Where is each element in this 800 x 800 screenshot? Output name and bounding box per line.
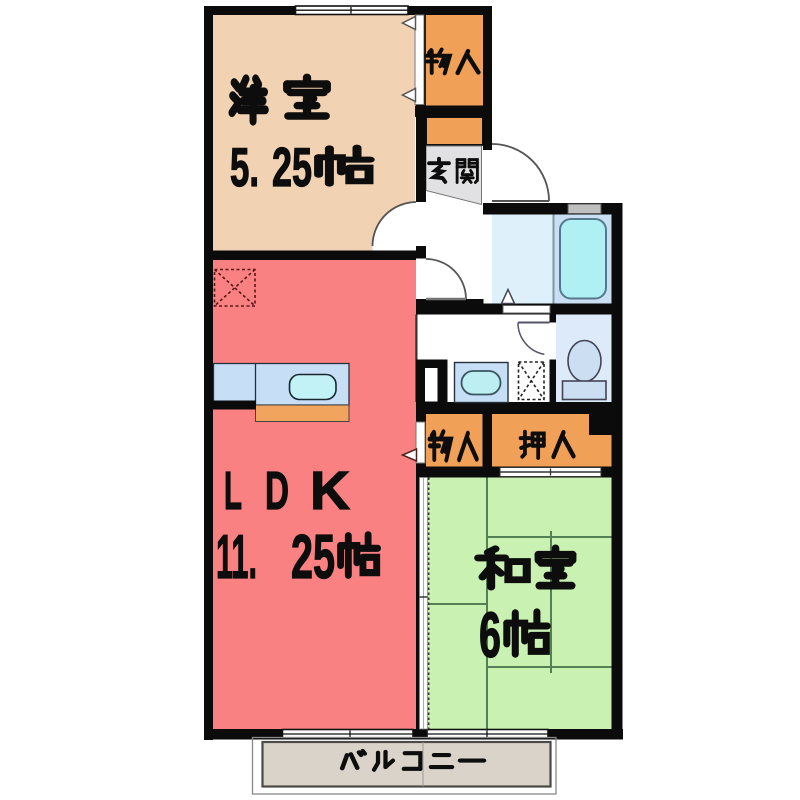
svg-text:25: 25 [291,523,335,592]
svg-text:D: D [265,461,289,521]
svg-text:6: 6 [479,599,501,671]
svg-text:11.: 11. [216,523,257,592]
svg-text:K: K [310,461,350,521]
svg-text:5.: 5. [230,136,259,198]
svg-text:L: L [224,461,242,521]
svg-text:25: 25 [272,136,312,198]
